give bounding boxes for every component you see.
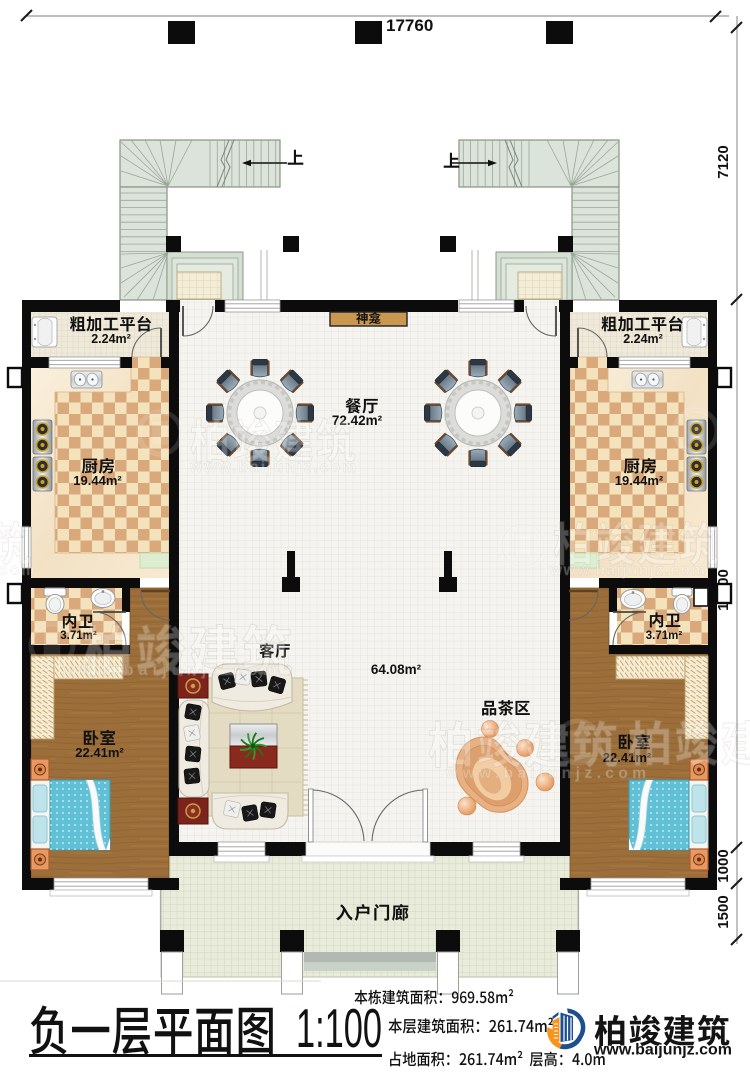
svg-text:1:100: 1:100	[296, 997, 382, 1059]
svg-text:3.71m²: 3.71m²	[646, 630, 683, 642]
svg-text:19.44m²: 19.44m²	[615, 473, 664, 488]
svg-text:1500: 1500	[715, 895, 732, 928]
svg-text:7120: 7120	[715, 145, 732, 178]
svg-text:64.08m²: 64.08m²	[371, 662, 422, 677]
svg-text:2.24m²: 2.24m²	[623, 332, 663, 346]
svg-text:www.baijunjz.com: www.baijunjz.com	[0, 562, 35, 579]
svg-text:www.baijunjz.com: www.baijunjz.com	[549, 562, 705, 579]
svg-text:17760: 17760	[386, 16, 433, 35]
svg-text:22.41m²: 22.41m²	[75, 745, 124, 760]
svg-text:19.44m²: 19.44m²	[73, 473, 122, 488]
svg-text:1000: 1000	[715, 849, 732, 882]
svg-text:www.baijunjz.com: www.baijunjz.com	[593, 1042, 732, 1059]
svg-text:2.24m²: 2.24m²	[91, 332, 131, 346]
